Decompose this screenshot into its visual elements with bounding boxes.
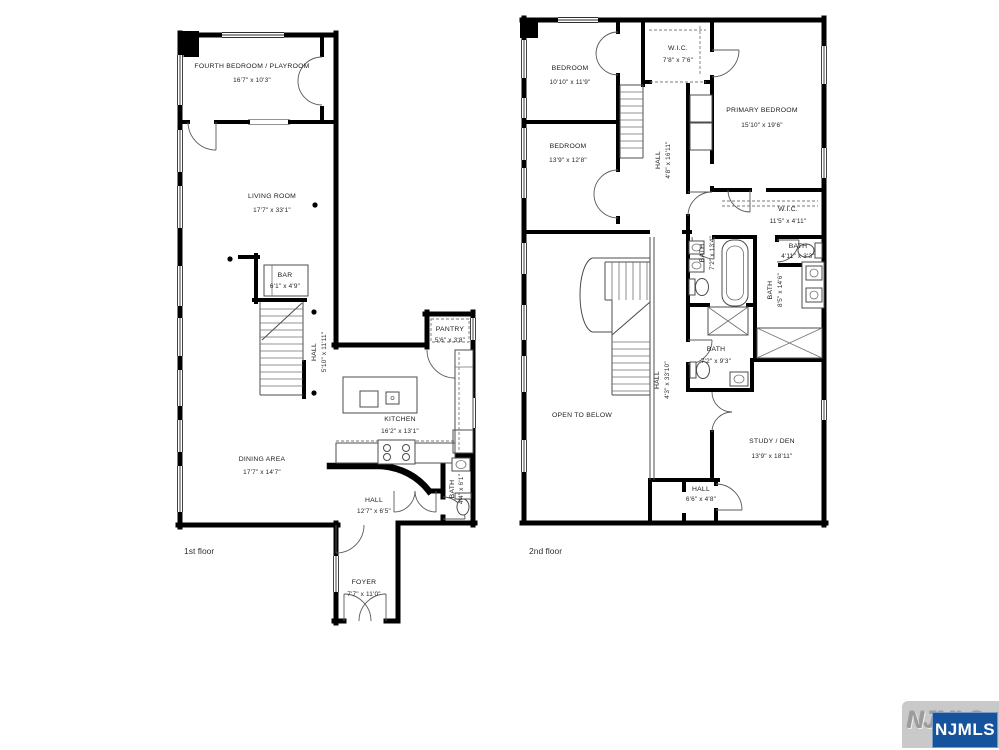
room-label: HALL bbox=[311, 343, 318, 361]
stove bbox=[378, 440, 415, 464]
floorplan-drawing: FOURTH BEDROOM / PLAYROOM 16'7" x 10'3" … bbox=[0, 0, 999, 750]
floor1-caption: 1st floor bbox=[184, 546, 214, 556]
shower-icon bbox=[757, 328, 822, 358]
door-primary bbox=[712, 50, 739, 77]
window bbox=[177, 466, 184, 512]
room-dims: 13'9" x 18'11" bbox=[752, 453, 793, 460]
floor2-walls bbox=[520, 18, 826, 525]
sink-icon bbox=[452, 458, 470, 471]
room-dims: 13'9" x 12'8" bbox=[549, 157, 587, 164]
floor1-plan: FOURTH BEDROOM / PLAYROOM 16'7" x 10'3" … bbox=[177, 31, 477, 623]
window bbox=[222, 32, 284, 39]
room-dims: 15'10" x 19'6" bbox=[741, 122, 782, 129]
room-dims: 4'4" x 6'1" bbox=[458, 474, 465, 504]
bath-primary-fixtures bbox=[689, 240, 748, 306]
room-label: LIVING ROOM bbox=[248, 193, 296, 200]
open-to-below-stairs bbox=[580, 237, 654, 480]
window bbox=[470, 318, 477, 340]
window bbox=[177, 130, 184, 172]
floor1-labels: FOURTH BEDROOM / PLAYROOM 16'7" x 10'3" … bbox=[184, 63, 465, 598]
room-label: KITCHEN bbox=[384, 416, 416, 423]
room-dims: 7'8" x 7'6" bbox=[663, 57, 693, 64]
floor2-caption: 2nd floor bbox=[529, 546, 562, 556]
window bbox=[521, 98, 528, 118]
room-label: PRIMARY BEDROOM bbox=[726, 107, 798, 114]
room-dims: 10'10" x 11'9" bbox=[550, 79, 591, 86]
room-dims: 17'7" x 33'1" bbox=[253, 207, 291, 214]
njmls-logo-badge: NJMLS bbox=[932, 712, 998, 748]
window bbox=[177, 186, 184, 228]
door-bedroom bbox=[188, 122, 216, 150]
window bbox=[521, 305, 528, 340]
room-dims: 4'11" x 3'3" bbox=[781, 253, 814, 260]
door-bedroom1-double bbox=[596, 32, 618, 75]
room-label: BEDROOM bbox=[552, 65, 589, 72]
door-study-double bbox=[712, 392, 732, 432]
window bbox=[821, 148, 828, 178]
shower-icon bbox=[708, 307, 748, 335]
floor2-upper-stairs bbox=[620, 85, 643, 158]
window bbox=[177, 55, 184, 105]
window bbox=[558, 17, 598, 24]
room-dims: 16'7" x 10'3" bbox=[233, 77, 271, 84]
window bbox=[821, 46, 828, 84]
room-dims: 4'3" x 33'10" bbox=[664, 361, 671, 399]
room-dims: 17'7" x 14'7" bbox=[243, 469, 281, 476]
njmls-watermark: NJMLS NJMLS bbox=[902, 701, 999, 748]
wic2-shelves bbox=[722, 201, 818, 206]
room-label: HALL bbox=[365, 497, 383, 504]
room-label: W.I.C. bbox=[668, 45, 688, 52]
door-bedroom2-bifold bbox=[594, 170, 618, 218]
room-dims: 5'6" x 3'8" bbox=[435, 337, 465, 344]
primary-closets bbox=[690, 95, 712, 150]
sink-icon bbox=[730, 372, 748, 386]
room-label: HALL bbox=[654, 371, 661, 389]
floor2-plan: BEDROOM 10'10" x 11'9" W.I.C. 7'8" x 7'6… bbox=[520, 17, 828, 557]
window bbox=[521, 243, 528, 274]
door-entry-double bbox=[344, 594, 386, 621]
window bbox=[821, 400, 828, 420]
window bbox=[333, 556, 340, 592]
window bbox=[521, 128, 528, 160]
room-dims: 5'10" x 11'11" bbox=[321, 332, 328, 372]
bath-double-fixtures bbox=[757, 262, 824, 358]
room-dims: 11'5" x 4'11" bbox=[770, 218, 807, 225]
floor1-stairs bbox=[260, 302, 303, 395]
room-dims: 4'8" x 16'11" bbox=[665, 141, 672, 178]
window bbox=[177, 370, 184, 406]
floorplan-page: FOURTH BEDROOM / PLAYROOM 16'7" x 10'3" … bbox=[0, 0, 999, 750]
wic1-shelves bbox=[649, 26, 706, 82]
room-label: BATH bbox=[449, 480, 456, 499]
njmls-logo-text: NJMLS bbox=[935, 720, 995, 740]
room-label: HALL bbox=[655, 151, 662, 169]
room-dims: 16'2" x 13'1" bbox=[381, 428, 419, 435]
room-label: BATH bbox=[699, 244, 706, 263]
room-dims: 12'7" x 6'5" bbox=[357, 508, 391, 515]
toilet-icon bbox=[689, 279, 709, 296]
window bbox=[177, 266, 184, 306]
room-label: STUDY / DEN bbox=[749, 438, 795, 445]
door-vestibule bbox=[688, 192, 712, 216]
window bbox=[521, 440, 528, 472]
room-label: BATH bbox=[707, 346, 726, 353]
room-dims: 8'5" x 14'6" bbox=[777, 273, 784, 307]
floor1-walls bbox=[178, 31, 475, 623]
window bbox=[521, 168, 528, 198]
door-pantry bbox=[427, 350, 455, 378]
window bbox=[521, 356, 528, 392]
door-foyer-inner bbox=[336, 525, 364, 553]
room-label: HALL bbox=[692, 486, 710, 493]
room-dims: 7'7" x 11'0" bbox=[347, 591, 380, 598]
room-dims: 7'2" x 9'3" bbox=[701, 358, 731, 365]
window bbox=[177, 420, 184, 452]
bar-counter bbox=[264, 265, 308, 296]
kitchen-island bbox=[343, 377, 417, 413]
room-label: BEDROOM bbox=[550, 143, 587, 150]
room-label: PANTRY bbox=[436, 326, 465, 333]
room-label: BATH bbox=[789, 243, 808, 250]
room-label: OPEN TO BELOW bbox=[552, 412, 612, 419]
window bbox=[521, 40, 528, 78]
room-label: W.I.C. bbox=[778, 206, 798, 213]
room-label: BATH bbox=[767, 281, 774, 300]
room-dims: 7'2" x 13'4" bbox=[709, 236, 716, 270]
room-dims: 6'1" x 4'9" bbox=[270, 283, 300, 290]
floor1-cased-opening bbox=[248, 120, 290, 125]
window bbox=[177, 318, 184, 356]
bathtub-icon bbox=[722, 240, 748, 306]
door-hall-small bbox=[716, 484, 742, 510]
room-label: FOURTH BEDROOM / PLAYROOM bbox=[194, 63, 309, 70]
room-label: DINING AREA bbox=[239, 456, 286, 463]
room-dims: 6'6" x 4'8" bbox=[686, 496, 716, 503]
room-label: BAR bbox=[278, 272, 293, 279]
room-label: FOYER bbox=[352, 579, 377, 586]
